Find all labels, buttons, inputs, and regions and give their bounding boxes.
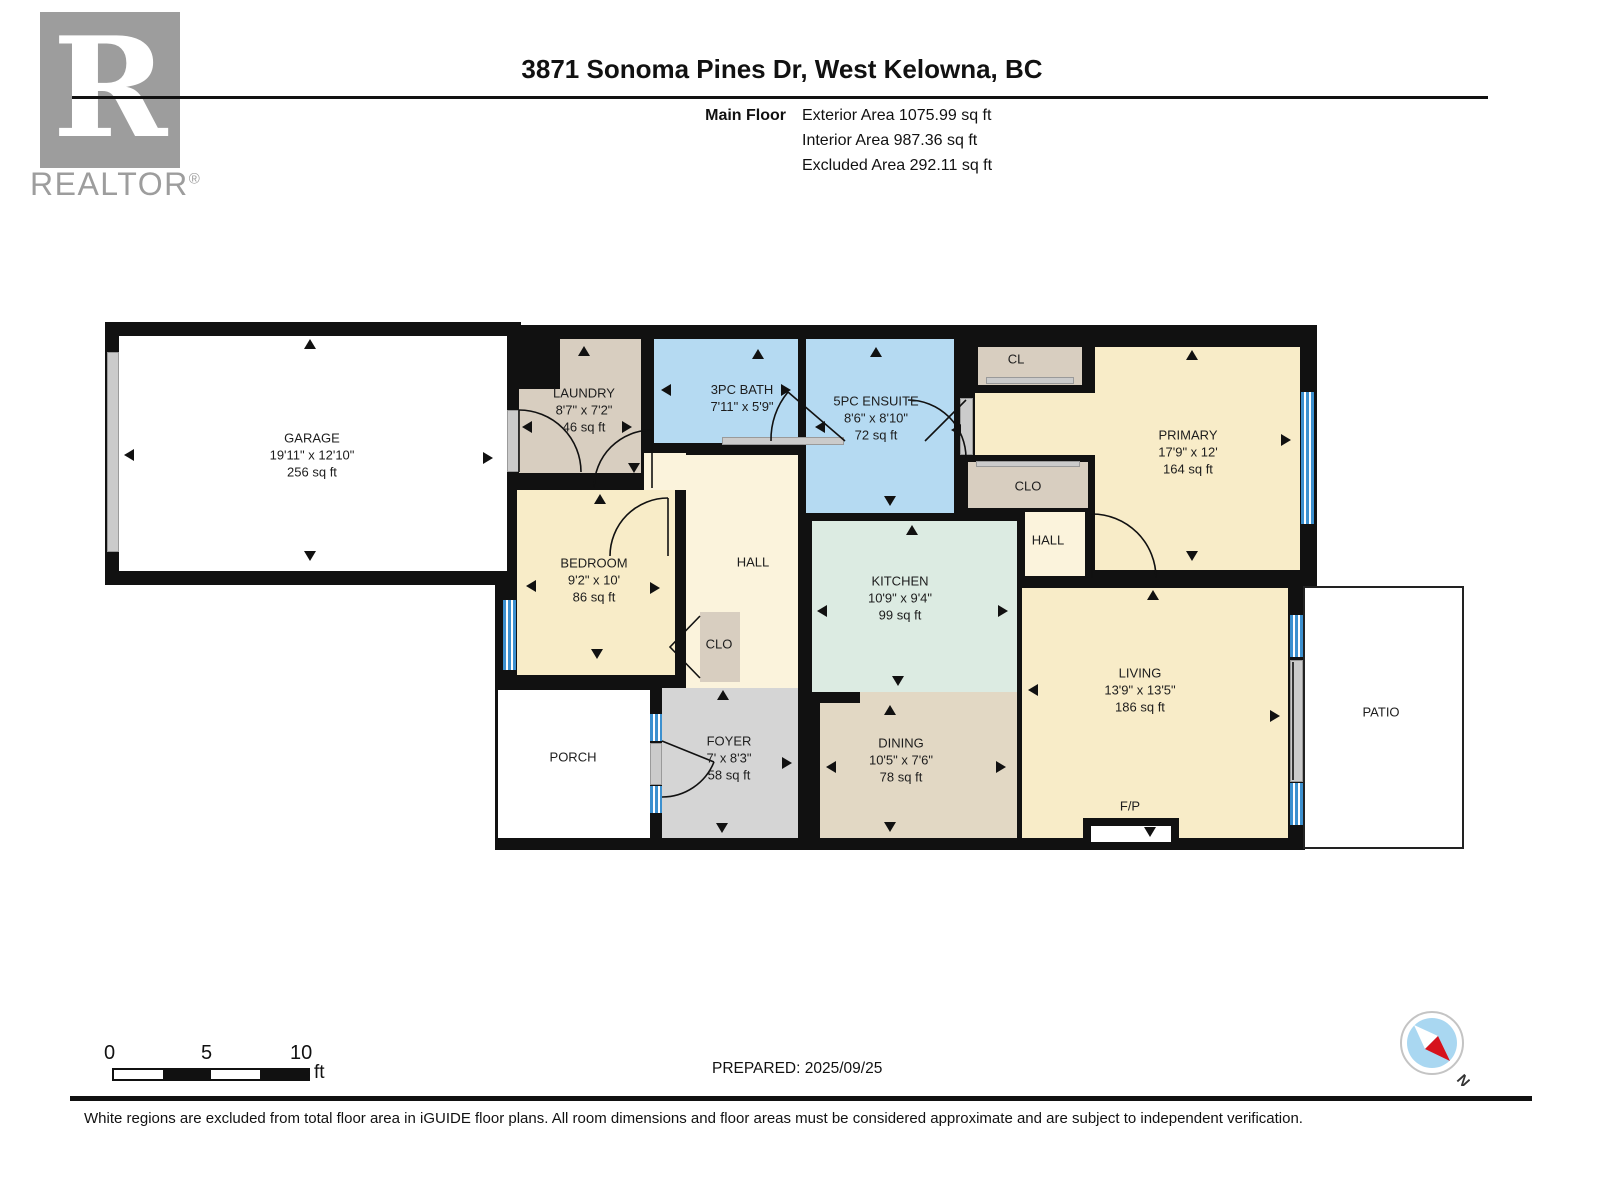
door-threshold (1290, 660, 1303, 782)
dimension-arrow-icon (1270, 710, 1280, 722)
dimension-arrow-icon (594, 494, 606, 504)
dimension-arrow-icon (716, 823, 728, 833)
scale-tick-5: 5 (201, 1042, 212, 1065)
dimension-arrow-icon (483, 452, 493, 464)
dimension-arrow-icon (817, 605, 827, 617)
room-primary-vestibule (975, 393, 1097, 455)
dimension-arrow-icon (782, 757, 792, 769)
compass-north-label: N (1453, 1071, 1470, 1086)
scale-unit: ft (314, 1062, 325, 1084)
room-laundry-notch (519, 339, 560, 389)
dimension-arrow-icon (884, 496, 896, 506)
compass-icon: N (1396, 1006, 1470, 1086)
room-label-hall: HALL (737, 553, 770, 570)
fireplace-inner (1091, 826, 1171, 842)
dimension-arrow-icon (884, 822, 896, 832)
room-label-primary: PRIMARY17'9" x 12'164 sq ft (1158, 426, 1217, 477)
dimension-arrow-icon (870, 347, 882, 357)
door-threshold (976, 461, 1080, 467)
room-label-clo: CLO (706, 635, 733, 652)
room-label-cl: CL (1008, 350, 1025, 367)
dimension-arrow-icon (815, 421, 825, 433)
dimension-arrow-icon (996, 761, 1006, 773)
window-icon (503, 600, 516, 670)
dimension-arrow-icon (578, 346, 590, 356)
dimension-arrow-icon (1028, 684, 1038, 696)
dimension-arrow-icon (650, 582, 660, 594)
dimension-arrow-icon (1147, 590, 1159, 600)
room-label-3pc-bath: 3PC BATH7'11" x 5'9" (710, 381, 773, 415)
dimension-arrow-icon (781, 384, 791, 396)
room-label-dining: DINING10'5" x 7'6"78 sq ft (869, 734, 933, 785)
dimension-arrow-icon (1186, 350, 1198, 360)
room-label-foyer: FOYER7' x 8'3"58 sq ft (707, 732, 752, 783)
window-icon (650, 786, 662, 813)
door-threshold (960, 398, 973, 455)
room-label-5pc-ensuite: 5PC ENSUITE8'6" x 8'10"72 sq ft (833, 392, 918, 443)
disclaimer-text: White regions are excluded from total fl… (84, 1110, 1554, 1127)
room-label-laundry: LAUNDRY8'7" x 7'2"46 sq ft (553, 384, 615, 435)
room-landing (644, 453, 686, 490)
dimension-arrow-icon (124, 449, 134, 461)
room-label-kitchen: KITCHEN10'9" x 9'4"99 sq ft (868, 572, 932, 623)
dimension-arrow-icon (1144, 827, 1156, 837)
dimension-arrow-icon (622, 421, 632, 433)
dimension-arrow-icon (826, 761, 836, 773)
scale-tick-0: 0 (104, 1042, 115, 1065)
room-label-hall: HALL (1032, 531, 1065, 548)
scale-bar-segments (112, 1068, 310, 1081)
window-icon (1290, 615, 1303, 657)
room-label-bedroom: BEDROOM9'2" x 10'86 sq ft (560, 554, 627, 605)
door-threshold (722, 437, 844, 445)
floor-plan-drawing: GARAGE19'11" x 12'10"256 sq ftLAUNDRY8'7… (0, 0, 1600, 1200)
dimension-arrow-icon (717, 690, 729, 700)
dimension-arrow-icon (884, 705, 896, 715)
dimension-arrow-icon (906, 525, 918, 535)
room-label-f-p: F/P (1120, 797, 1140, 814)
footer-divider (70, 1096, 1532, 1101)
dimension-arrow-icon (951, 424, 961, 436)
dimension-arrow-icon (526, 580, 536, 592)
dimension-arrow-icon (628, 463, 640, 473)
room-label-living: LIVING13'9" x 13'5"186 sq ft (1104, 664, 1175, 715)
dimension-arrow-icon (1281, 434, 1291, 446)
dimension-arrow-icon (591, 649, 603, 659)
dimension-arrow-icon (1186, 551, 1198, 561)
dimension-arrow-icon (752, 349, 764, 359)
prepared-date: PREPARED: 2025/09/25 (712, 1060, 882, 1078)
door-threshold (107, 352, 119, 552)
dimension-arrow-icon (998, 605, 1008, 617)
room-label-clo: CLO (1015, 477, 1042, 494)
room-label-garage: GARAGE19'11" x 12'10"256 sq ft (270, 429, 355, 480)
room-label-porch: PORCH (550, 748, 597, 765)
room-dining-opening (860, 692, 1017, 703)
door-threshold (507, 410, 519, 472)
window-icon (650, 714, 662, 741)
window-icon (1301, 392, 1314, 524)
dimension-arrow-icon (661, 384, 671, 396)
dimension-arrow-icon (892, 676, 904, 686)
dimension-arrow-icon (304, 339, 316, 349)
floor-plan-page: R REALTOR® 3871 Sonoma Pines Dr, West Ke… (0, 0, 1600, 1200)
window-icon (1290, 783, 1303, 825)
door-threshold (986, 377, 1074, 384)
door-threshold (650, 743, 662, 785)
scale-tick-10: 10 (290, 1042, 312, 1065)
dimension-arrow-icon (522, 421, 532, 433)
room-label-patio: PATIO (1362, 703, 1399, 720)
dimension-arrow-icon (304, 551, 316, 561)
